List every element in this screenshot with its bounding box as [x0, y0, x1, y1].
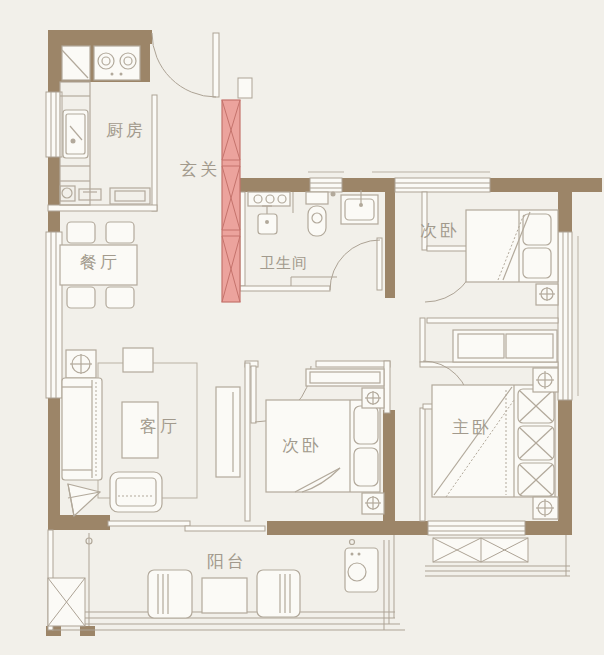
- small-appliance-icons: [60, 186, 150, 204]
- window-master: [428, 521, 525, 535]
- kitchen-label: 厨房: [106, 120, 146, 140]
- floor-plan: 厨房 玄关 餐厅 卫生间 次卧 客厅 次卧 主卧 阳台: [0, 0, 604, 655]
- toilet-icon: [306, 192, 336, 237]
- balcony-sliding-door: [108, 521, 265, 531]
- ac-unit-icon: [533, 368, 558, 392]
- bathroom-label: 卫生间: [260, 254, 308, 272]
- bedroom-north: [466, 210, 558, 305]
- ac-unit-icon: [533, 497, 558, 519]
- kitchen-sink-icon: [63, 110, 88, 158]
- dining-chair: [106, 222, 134, 243]
- master-label: 主卧: [452, 417, 492, 437]
- bed-icon: [432, 385, 555, 497]
- ac-unit-icon: [362, 388, 384, 408]
- balcony-chair: [148, 570, 192, 618]
- balcony-label: 阳台: [207, 551, 247, 571]
- dining-chair: [106, 287, 134, 308]
- balcony-table: [202, 578, 247, 613]
- bathroom: [248, 190, 378, 236]
- balcony: [48, 533, 405, 630]
- sofa-icon: [62, 378, 102, 480]
- balcony-chair: [257, 570, 300, 617]
- highlighted-feature-wall: [222, 100, 240, 302]
- floor-plan-page: 厨房 玄关 餐厅 卫生间 次卧 客厅 次卧 主卧 阳台: [0, 0, 604, 655]
- dining-chair: [67, 287, 95, 308]
- equipment-platform: [425, 535, 570, 576]
- washing-machine-icon: [345, 540, 378, 593]
- dining-label: 餐厅: [80, 252, 120, 272]
- window-bathroom: [308, 172, 344, 192]
- wardrobe-icon: [453, 330, 557, 362]
- dining-chair: [67, 222, 95, 243]
- vanity-icon: [248, 192, 290, 234]
- living-label: 客厅: [140, 416, 180, 436]
- window-bedroom-north: [558, 232, 578, 400]
- tv-cabinet-icon: [216, 387, 240, 477]
- floor-plant-icon: [68, 484, 100, 516]
- wardrobe-icon: [306, 369, 384, 386]
- tv-console: [123, 348, 153, 372]
- bedroom-middle-label: 次卧: [282, 435, 322, 455]
- ac-unit-icon: [66, 350, 96, 378]
- ac-unit-icon: [362, 493, 384, 514]
- bathroom-door: [330, 238, 382, 290]
- master-bedroom: [432, 330, 558, 519]
- stove-icon: [94, 46, 140, 80]
- armchair-icon: [110, 472, 162, 512]
- shaft-icon: [48, 578, 85, 626]
- basin-icon: [341, 190, 378, 224]
- fridge-icon: [62, 46, 90, 80]
- ac-unit-icon: [536, 284, 558, 305]
- entry-label: 玄关: [180, 159, 220, 179]
- bed-icon: [466, 210, 558, 282]
- bedroom-north-label: 次卧: [420, 220, 460, 240]
- entry-door: [152, 33, 219, 97]
